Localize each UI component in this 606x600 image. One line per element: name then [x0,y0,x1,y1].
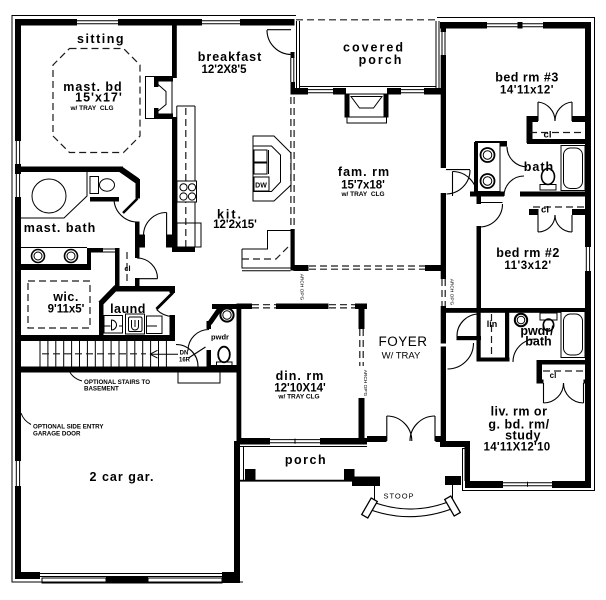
svg-text:cl: cl [550,371,557,380]
svg-text:pwdr: pwdr [211,333,229,342]
svg-text:w/ TRAY CLG: w/ TRAY CLG [69,105,113,112]
svg-text:2 car gar.: 2 car gar. [90,470,155,484]
svg-text:w/ TRAY CLG: w/ TRAY CLG [340,191,384,198]
svg-text:ARCH OP'G: ARCH OP'G [299,274,305,301]
svg-text:16R: 16R [179,358,191,364]
svg-text:W/ TRAY: W/ TRAY [382,351,421,362]
svg-text:cl: cl [544,130,552,141]
svg-text:ARCH OP'G: ARCH OP'G [449,279,455,306]
svg-text:12'2x15': 12'2x15' [213,219,257,231]
svg-text:ARCH OP'G: ARCH OP'G [362,370,368,397]
svg-text:cl: cl [124,264,130,273]
svg-text:15'x17': 15'x17' [75,91,123,105]
svg-text:mast. bath: mast. bath [24,221,97,235]
svg-text:GARAGE DOOR: GARAGE DOOR [33,431,81,438]
svg-text:FOYER: FOYER [378,334,427,349]
svg-text:bath: bath [525,335,551,349]
svg-text:laund: laund [110,302,146,316]
svg-text:11'3x12': 11'3x12' [504,260,551,272]
svg-text:14'11x12': 14'11x12' [500,85,554,97]
svg-text:study: study [505,429,541,443]
svg-text:OPTIONAL SIDE ENTRY: OPTIONAL SIDE ENTRY [33,424,104,431]
svg-text:porch: porch [285,453,327,467]
svg-text:BASEMENT: BASEMENT [84,386,119,393]
svg-text:breakfast: breakfast [198,50,263,64]
svg-text:sitting: sitting [77,32,125,46]
svg-text:bed rm #2: bed rm #2 [496,246,560,260]
svg-text:15'7x18': 15'7x18' [341,180,385,192]
svg-text:wic.: wic. [52,290,79,304]
svg-text:9'11x5': 9'11x5' [48,304,85,316]
svg-text:cl: cl [541,205,549,216]
svg-text:DW: DW [255,183,267,190]
svg-text:porch: porch [359,53,404,67]
svg-text:din. rm: din. rm [276,369,325,383]
svg-text:bath: bath [524,160,554,174]
svg-text:12'2X8'5: 12'2X8'5 [201,64,247,76]
svg-text:14'11X12'10: 14'11X12'10 [484,442,551,454]
svg-text:w/ TRAY CLG: w/ TRAY CLG [277,394,319,401]
svg-text:fam. rm: fam. rm [338,165,390,179]
svg-text:lin: lin [487,319,498,329]
svg-text:STOOP: STOOP [383,492,414,501]
svg-text:DN: DN [180,351,189,357]
svg-text:liv. rm or: liv. rm or [491,405,548,419]
svg-text:bed rm #3: bed rm #3 [495,71,559,85]
